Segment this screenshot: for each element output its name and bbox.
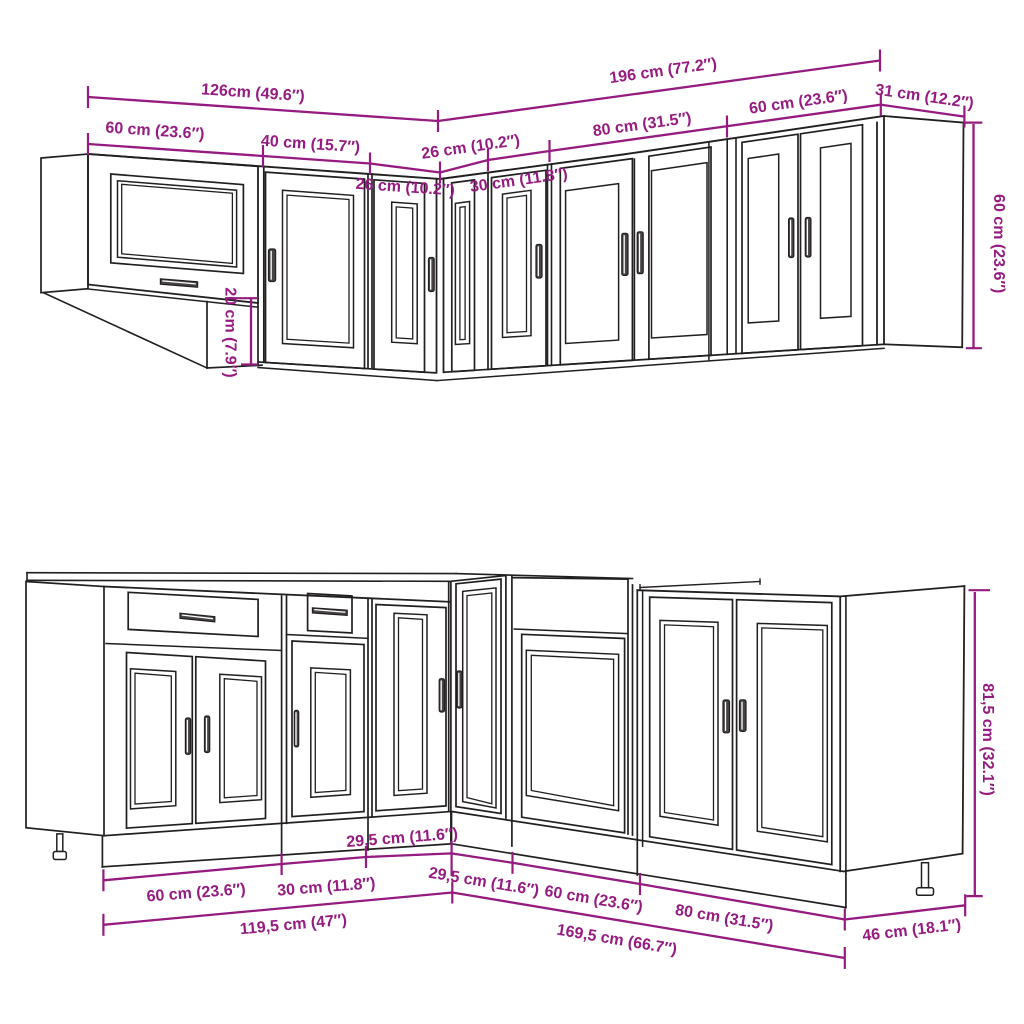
svg-text:81,5 cm (32.1″): 81,5 cm (32.1″) [979, 683, 996, 796]
svg-text:20 cm (7.9″): 20 cm (7.9″) [222, 287, 239, 377]
svg-text:60 cm (23.6″): 60 cm (23.6″) [990, 194, 1007, 293]
